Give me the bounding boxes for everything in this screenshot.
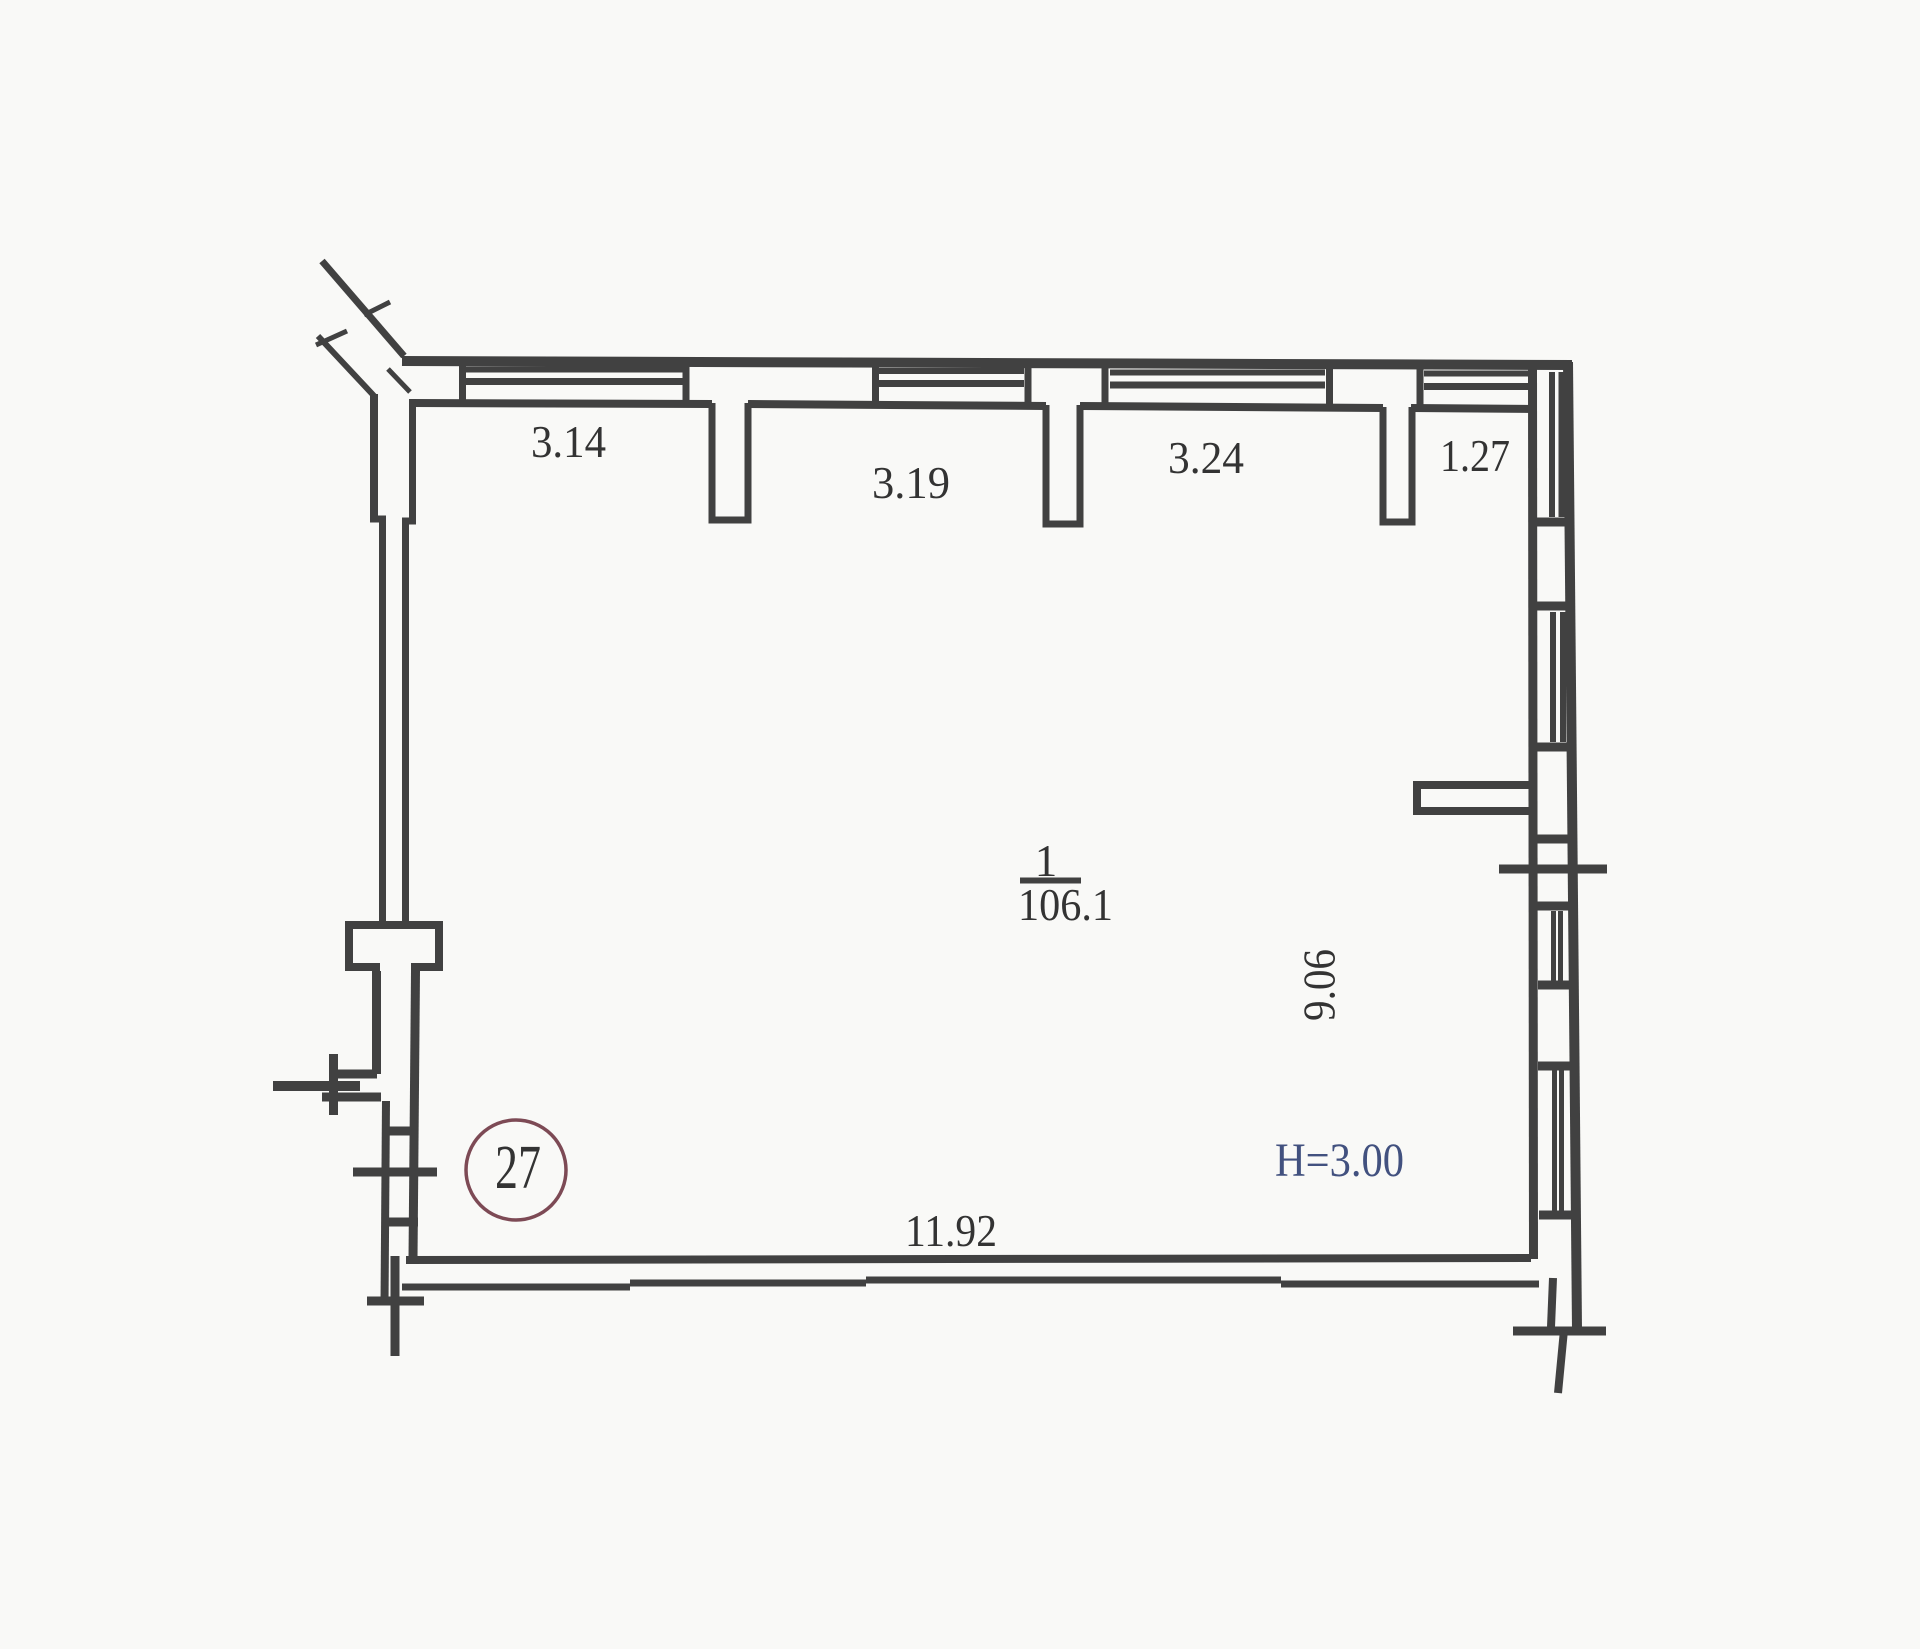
svg-text:27: 27 [495,1134,541,1202]
svg-text:9.06: 9.06 [1294,949,1345,1021]
svg-text:1.27: 1.27 [1440,430,1510,481]
svg-text:H=3.00: H=3.00 [1275,1134,1404,1187]
svg-text:3.24: 3.24 [1168,432,1244,483]
svg-text:11.92: 11.92 [905,1205,997,1256]
svg-text:3.14: 3.14 [531,416,606,467]
svg-text:106.1: 106.1 [1018,879,1113,930]
svg-text:3.19: 3.19 [872,457,950,508]
